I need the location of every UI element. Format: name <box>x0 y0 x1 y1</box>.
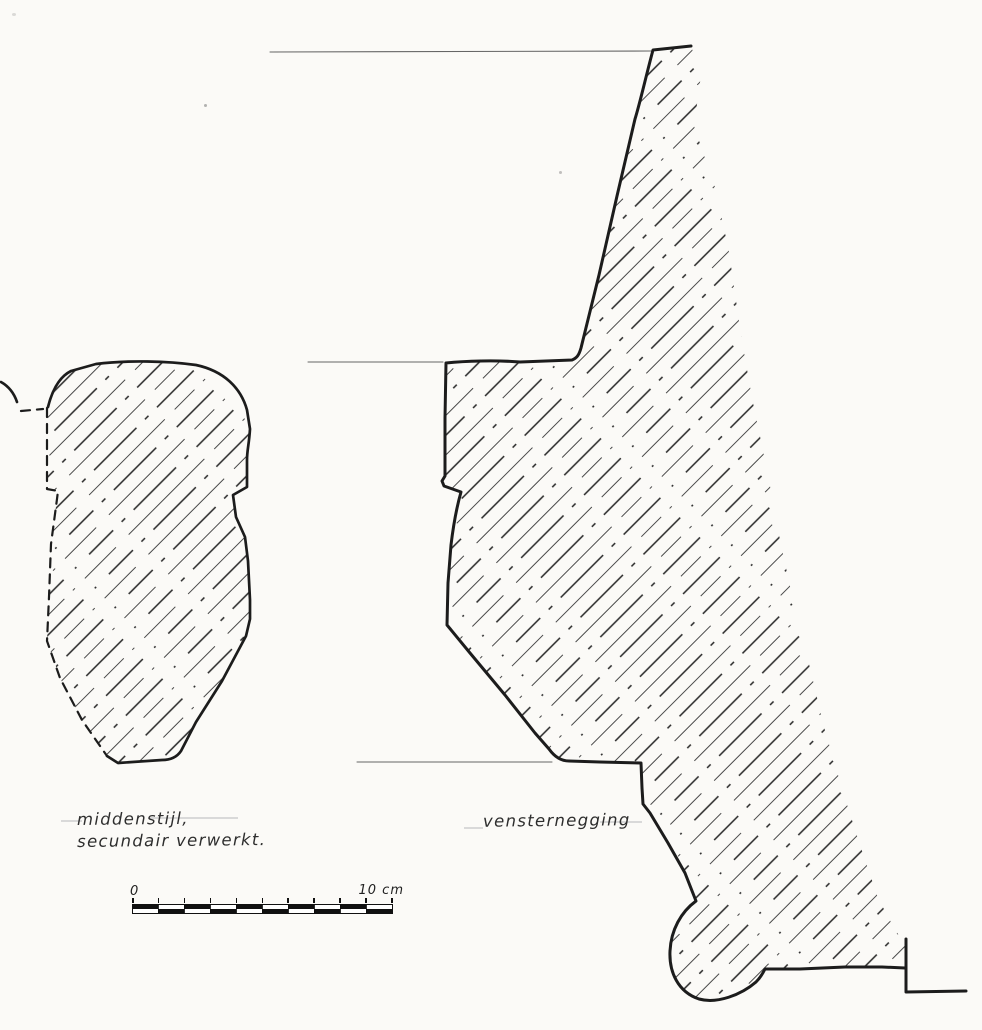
scale-bar-tick <box>287 898 289 903</box>
scale-bar-tick <box>132 898 134 903</box>
pencil-guide-right-lead <box>464 827 483 829</box>
scale-bar-tick <box>339 898 341 903</box>
scale-bar-segment <box>314 905 340 913</box>
left-profile-hatch <box>47 361 250 763</box>
scale-bar-tick <box>158 898 160 903</box>
paper-speck <box>559 171 562 174</box>
scale-bar-end-label: 10 cm <box>359 883 405 898</box>
reference-line-top <box>270 51 651 52</box>
scale-bar-tick <box>391 898 393 903</box>
drawing-canvas: middenstijl, secundair verwerkt. venster… <box>0 0 982 1030</box>
paper-speck <box>204 104 207 107</box>
label-vensternegging-text: vensternegging <box>483 810 631 831</box>
wall-step-outline <box>906 939 966 992</box>
label-vensternegging: vensternegging <box>483 809 631 833</box>
label-middenstijl-line2: secundair verwerkt. <box>77 830 266 851</box>
scale-bar-segment <box>210 905 236 913</box>
scale-bar-segment <box>262 905 288 913</box>
scale-bar-segment <box>340 905 366 913</box>
scale-bar-tick <box>262 898 264 903</box>
scale-bar-start-label: 0 <box>130 884 139 899</box>
label-middenstijl: middenstijl, secundair verwerkt. <box>77 807 266 853</box>
paper-speck <box>12 13 16 16</box>
scale-bar-segment <box>184 905 210 913</box>
label-middenstijl-line1: middenstijl, <box>77 809 189 829</box>
scale-bar-segment <box>236 905 262 913</box>
adjoining-fragment-curve <box>1 382 17 402</box>
scale-bar-tick <box>236 898 238 903</box>
scale-bar-segment <box>366 905 392 913</box>
scale-bar: 0 10 cm <box>132 904 393 914</box>
right-profile-hatch <box>442 46 906 1000</box>
scale-bar-tick <box>184 898 186 903</box>
scale-bar-tick <box>210 898 212 903</box>
scale-bar-segment <box>288 905 314 913</box>
scale-bar-segment <box>133 905 158 913</box>
scale-bar-tick <box>365 898 367 903</box>
profile-drawing-svg <box>0 0 982 1030</box>
scale-bar-tick <box>313 898 315 903</box>
scale-bar-segment <box>158 905 184 913</box>
